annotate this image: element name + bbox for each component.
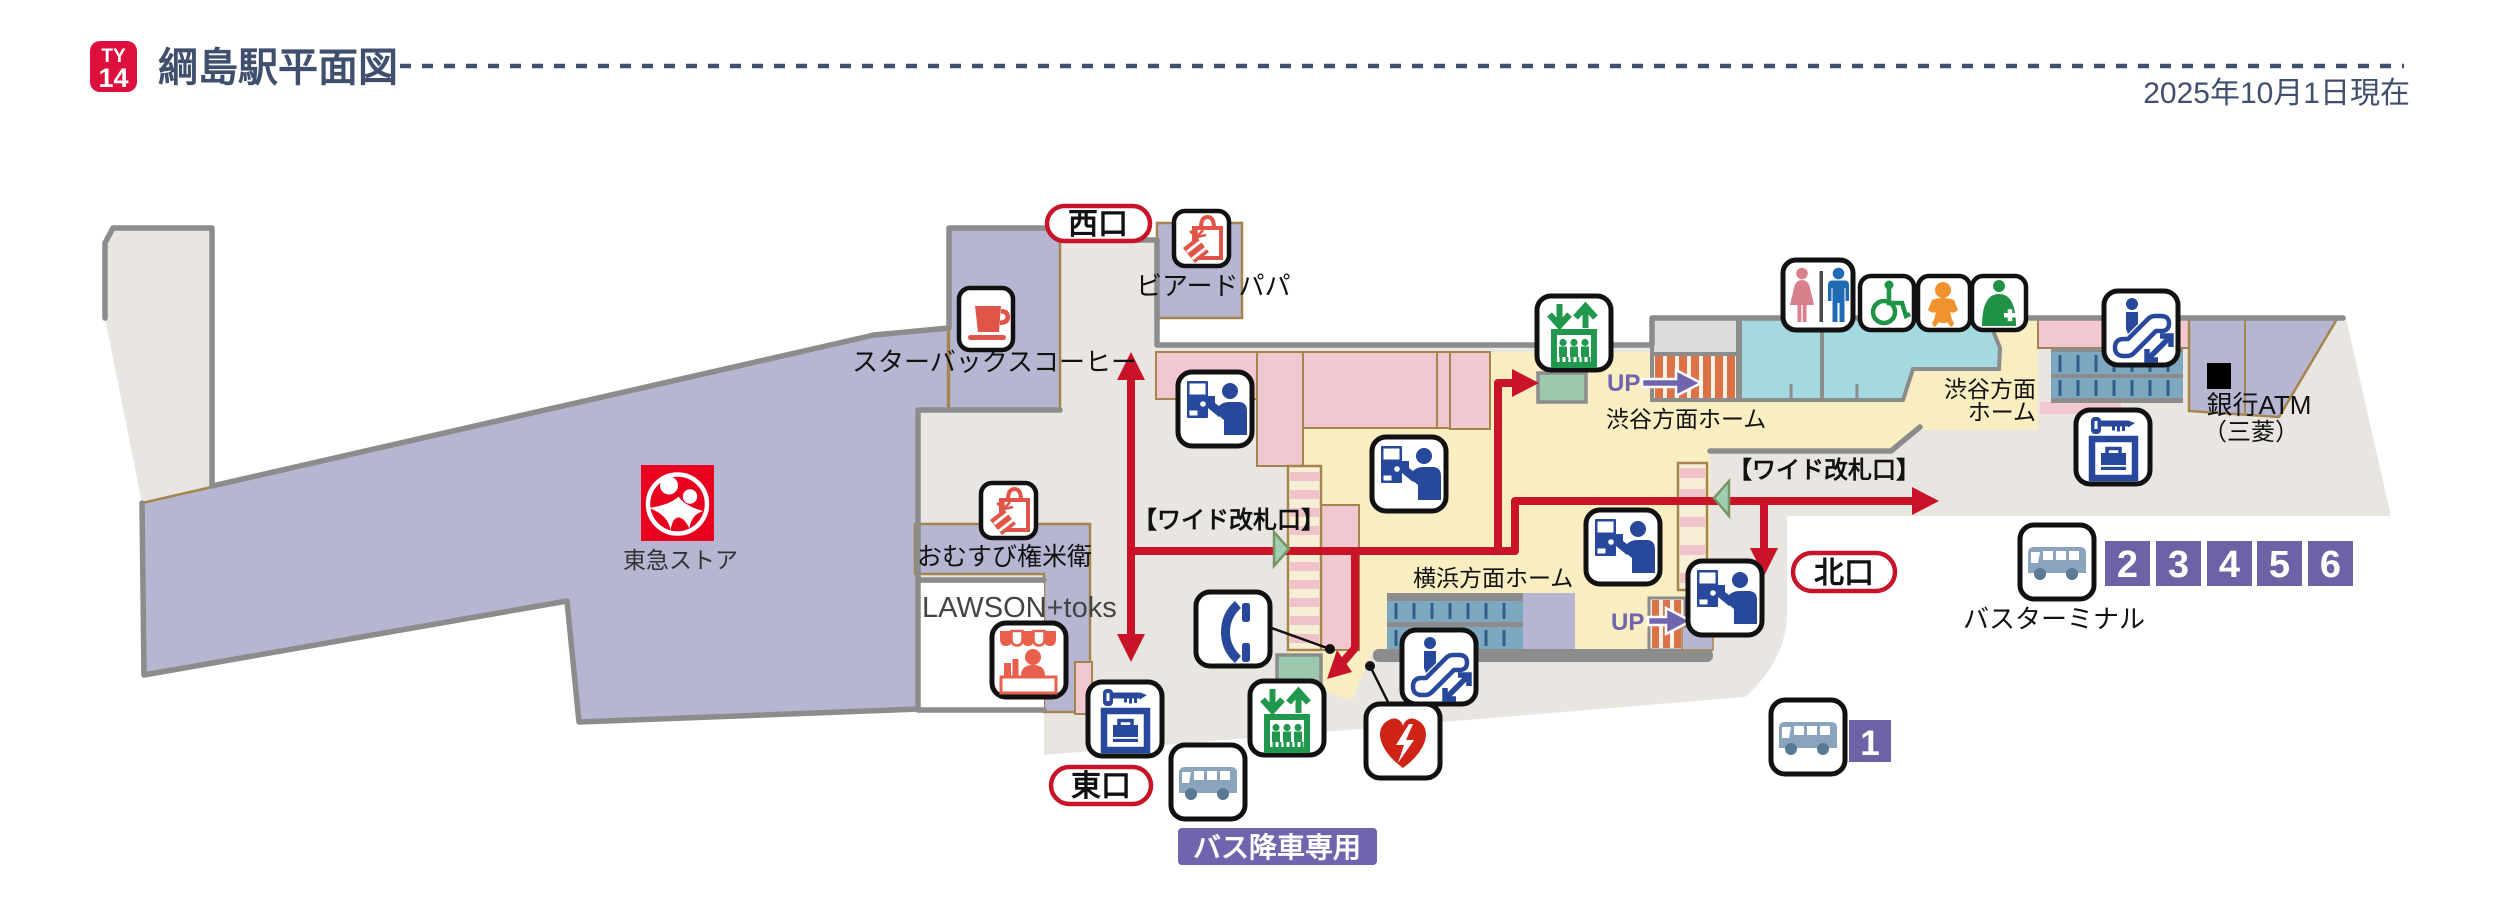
svg-text:横浜方面ホーム: 横浜方面ホーム [1413, 565, 1573, 591]
svg-text:東急ストア: 東急ストア [623, 547, 738, 573]
svg-text:スターバックスコーヒー: スターバックスコーヒー [852, 347, 1137, 377]
svg-text:綱島駅平面図: 綱島駅平面図 [158, 46, 398, 90]
svg-text:渋谷方面ホーム: 渋谷方面ホーム [1606, 406, 1766, 432]
svg-text:【ワイド改札口】: 【ワイド改札口】 [1133, 507, 1325, 534]
svg-text:バスターミナル: バスターミナル [1963, 604, 2145, 634]
svg-text:UP: UP [1611, 609, 1644, 636]
svg-text:5: 5 [2269, 544, 2290, 586]
svg-text:銀行ATM: 銀行ATM [2207, 390, 2312, 420]
svg-text:4: 4 [2219, 544, 2240, 586]
svg-text:1: 1 [1860, 724, 1879, 763]
svg-text:UP: UP [1607, 370, 1640, 397]
svg-text:ホーム: ホーム [1968, 399, 2036, 425]
svg-text:おむすび権米衛: おむすび権米衛 [917, 543, 1092, 571]
svg-text:ビアードパパ: ビアードパパ [1136, 271, 1290, 301]
svg-text:6: 6 [2320, 544, 2341, 586]
svg-text:【ワイド改札口】: 【ワイド改札口】 [1728, 457, 1920, 484]
svg-text:（三菱）: （三菱） [2203, 419, 2299, 446]
svg-text:西口: 西口 [1068, 208, 1128, 241]
svg-text:バス降車専用: バス降車専用 [1193, 832, 1361, 863]
svg-text:北口: 北口 [1814, 557, 1874, 590]
svg-text:2025年10月1日現在: 2025年10月1日現在 [2143, 77, 2410, 110]
svg-text:東口: 東口 [1071, 770, 1131, 803]
svg-text:2: 2 [2117, 544, 2138, 586]
svg-text:3: 3 [2168, 544, 2189, 586]
svg-text:LAWSON+toks: LAWSON+toks [922, 592, 1117, 624]
svg-text:14: 14 [98, 63, 128, 93]
